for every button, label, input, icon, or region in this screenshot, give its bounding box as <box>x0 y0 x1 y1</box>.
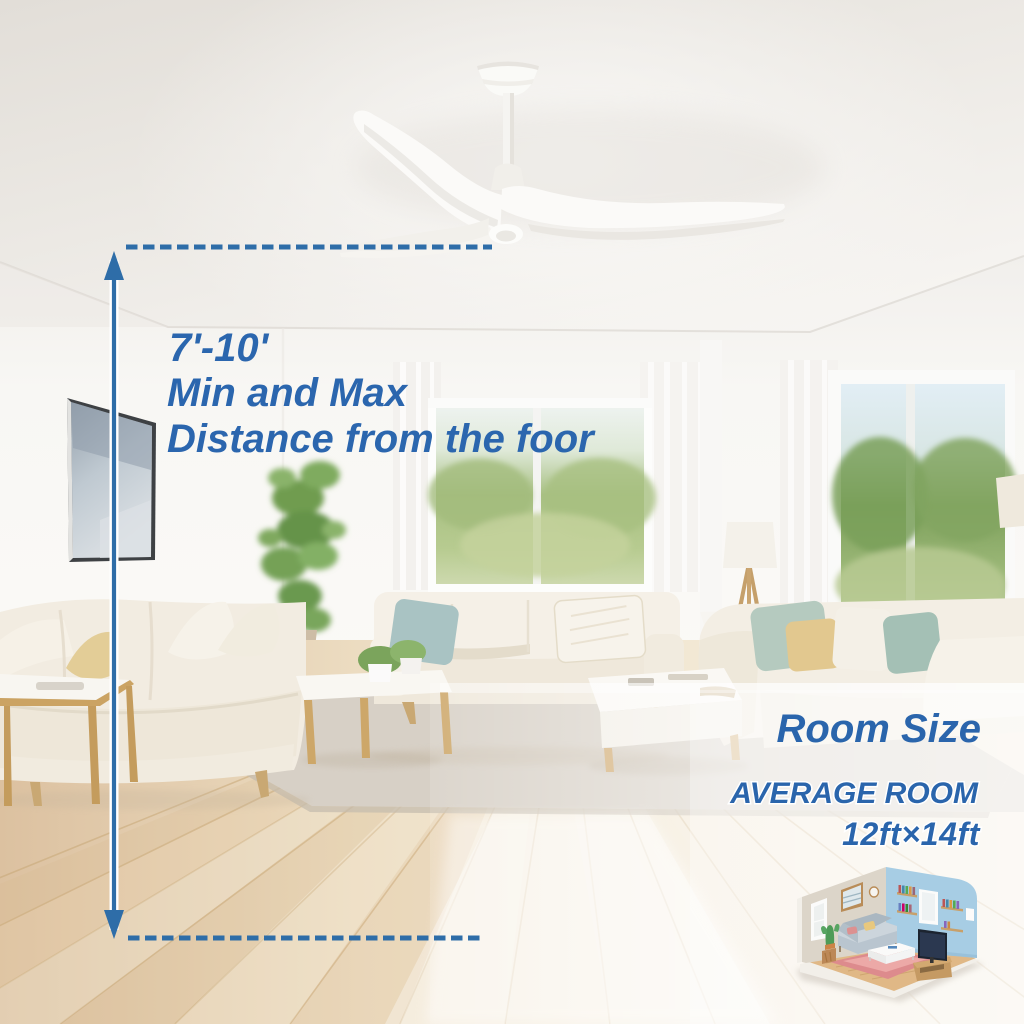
svg-text:AVERAGE ROOM: AVERAGE ROOM <box>729 777 979 810</box>
svg-text:12ft×14ft: 12ft×14ft <box>842 816 981 852</box>
svg-text:7'-10': 7'-10' <box>169 326 270 370</box>
svg-text:Min and Max: Min and Max <box>167 371 409 415</box>
svg-text:Room Size: Room Size <box>777 707 981 751</box>
svg-text:Distance from the foor: Distance from the foor <box>167 417 596 461</box>
